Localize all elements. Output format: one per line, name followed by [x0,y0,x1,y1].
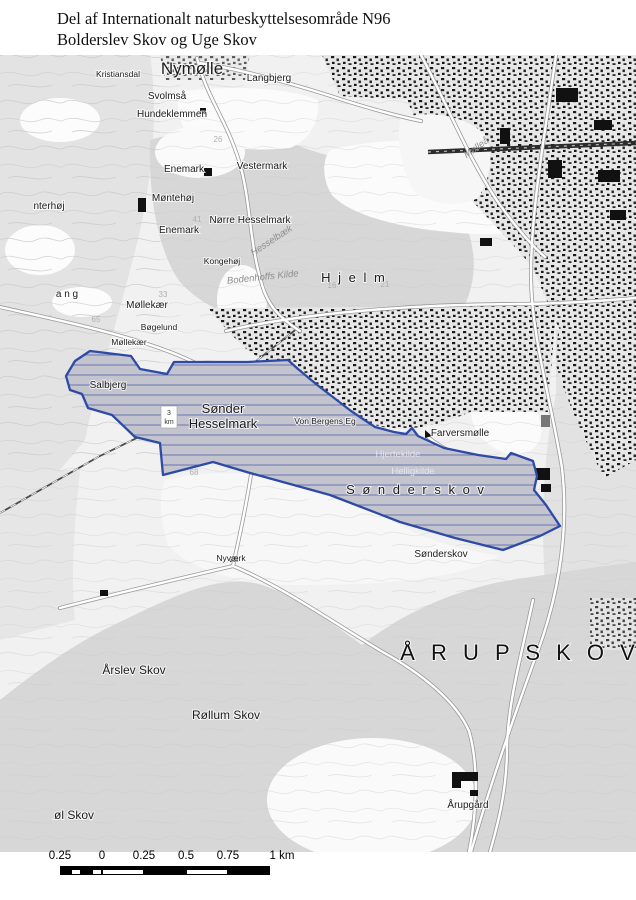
map-label: Sønder [202,401,245,416]
map-label: Å R U P S K O V [400,640,636,665]
map-label: Røllum Skov [192,708,260,722]
map-label: øl Skov [54,808,94,822]
map-label: a n g [56,289,78,300]
map-label: Hundeklemmen [137,109,207,120]
map-label: S ø n d e r s k o v [346,482,486,497]
title-line-1: Del af Internationalt naturbeskyttelseso… [57,8,391,29]
scale-bar-line [60,866,270,869]
map-label: Nyværk [216,553,246,563]
map-label: nterhøj [33,201,64,212]
map-label: Sønderskov [414,549,467,560]
map-label: Salbjerg [90,380,127,391]
map-label: 33 [159,290,168,299]
map-label: Enemark [164,164,205,175]
map-label: Møllekær [126,300,168,311]
map-label: Enemark [159,225,200,236]
title-line-2: Bolderslev Skov og Uge Skov [57,29,391,50]
map-label: Nymølle [161,59,223,78]
scale-bar-segment [60,869,71,875]
map-label: 41 [193,215,202,224]
map-label: Årupgård [447,798,488,811]
km-marker-top: 3 [167,410,171,417]
map-container: 3 km KristiansdalNymølleLangbjergSvolmså… [0,55,636,852]
map-label: Farversmølle [431,428,490,439]
map-label: Årslev Skov [102,662,165,677]
map-label: Nørre Hesselmark [209,215,291,226]
map-label: Vestermark [237,161,289,172]
map-label: 68 [190,468,199,477]
km-marker: 3 km [161,406,177,428]
map-label: Langbjerg [247,73,291,84]
km-marker-bottom: km [164,419,174,426]
map-label: Kongehøj [204,256,240,266]
scale-bar-segment [81,869,92,875]
map-label: Kristiansdal [96,69,140,79]
map-label: 21 [381,280,390,289]
map-label: Møllekær [111,337,147,347]
map-label: Von Bergens Eg [294,416,356,426]
map-label: 65 [92,315,101,324]
map-label: Hjertekilde [376,449,421,460]
scale-bar-segment [186,869,228,875]
map-label: Bøgelund [141,322,178,332]
map-label: Hesselmark [189,416,258,431]
map-label: Møntehøj [152,193,194,204]
scale-bar-segment [102,869,144,875]
map-canvas: 3 km KristiansdalNymølleLangbjergSvolmså… [0,55,636,852]
map-label: 16 [328,281,337,290]
page-title: Del af Internationalt naturbeskyttelseso… [57,8,391,50]
scale-bar-segment [228,869,270,875]
scale-bar-segment [92,869,103,875]
scale-bar-segment [71,869,82,875]
scale-bar-segment [144,869,186,875]
map-label: Helligkilde [391,466,434,477]
map-label: Svolmså [148,90,187,102]
map-label: 26 [214,135,223,144]
